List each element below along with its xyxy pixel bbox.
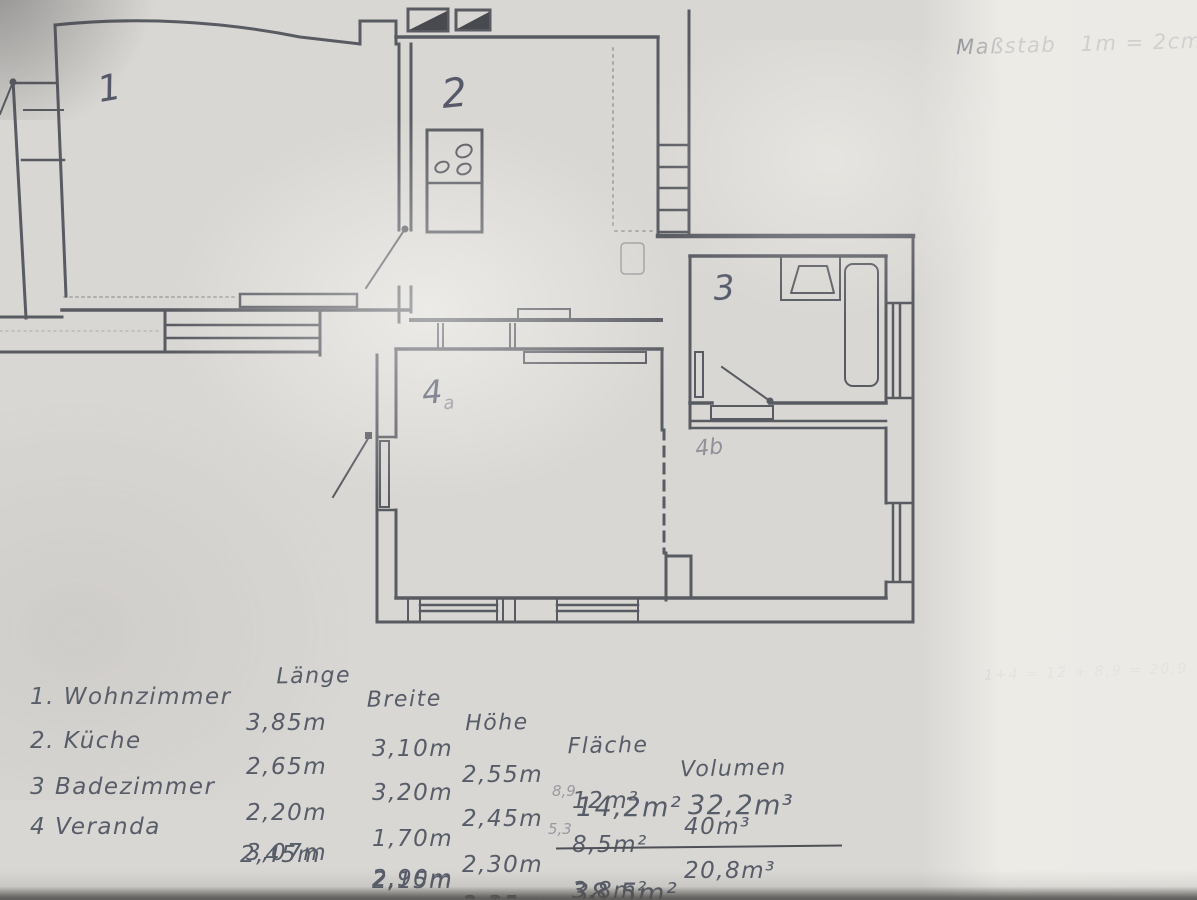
room-2-side-window-icon <box>658 145 689 233</box>
room-1-2-wall-and-door <box>366 44 411 322</box>
room-label-4a: 4a <box>420 371 455 416</box>
room-3-window-icon <box>886 303 913 398</box>
paper-shading-right <box>920 0 1197 900</box>
row-hoehe: 2,15m <box>462 894 543 900</box>
room-4a-bottom-windows-icon <box>408 598 638 622</box>
chimney-icon-right <box>456 10 490 30</box>
totals-row: 38,5m² 101,6m³ <box>0 852 940 886</box>
room-2-door-leaf-pencil <box>621 243 644 274</box>
room-1-window-icon <box>240 294 357 307</box>
stove-icon <box>427 130 482 232</box>
table-row: 2. Küche 2,65m 3,20m 2,45m 8,5m² 20,8m³ <box>0 702 940 736</box>
room-label-3: 3 <box>712 268 736 309</box>
room-4a-door-swing <box>333 432 372 497</box>
room-1-walls <box>0 21 410 331</box>
room-4a-walls <box>377 349 886 622</box>
room-3-door-swing <box>695 352 774 419</box>
table-row: 1. Wohnzimmer 3,85m 3,10m 2,55m 12m² 40m… <box>0 658 940 692</box>
bed-icon <box>845 264 878 386</box>
side-calculation-note: 1+4 = 12 + 8,9 = 20,9 <box>984 660 1197 683</box>
photographed-floor-plan-sheet: 1 2 3 4a 4b Maßstab 1m = 2cm 1+4 = 12 + … <box>0 0 1197 900</box>
total-flaeche: 38,5m² <box>570 878 684 900</box>
room-label-4b-pencil: 4b <box>694 434 724 462</box>
chimney-icon-left <box>408 9 448 31</box>
pencil-subtotal-note: 8,9 <box>552 782 576 800</box>
room-label-1: 1 <box>94 67 124 111</box>
room-4a-top-window-icon <box>524 352 646 363</box>
room-labels: 1 2 3 4a 4b <box>94 67 736 462</box>
room-4b-window-icon <box>886 503 913 582</box>
floor-plan-drawing: 1 2 3 4a 4b <box>0 0 930 640</box>
room-2-walls <box>396 11 689 348</box>
room-label-2: 2 <box>439 70 469 118</box>
pencil-subtotal-note: 5,3 <box>548 820 572 838</box>
scale-note: Maßstab 1m = 2cm <box>956 29 1197 59</box>
sink-icon <box>781 257 840 300</box>
table-row: 3 Badezimmer 2,20m 1,70m 2,30m 3,8m² 8,6… <box>0 748 940 782</box>
